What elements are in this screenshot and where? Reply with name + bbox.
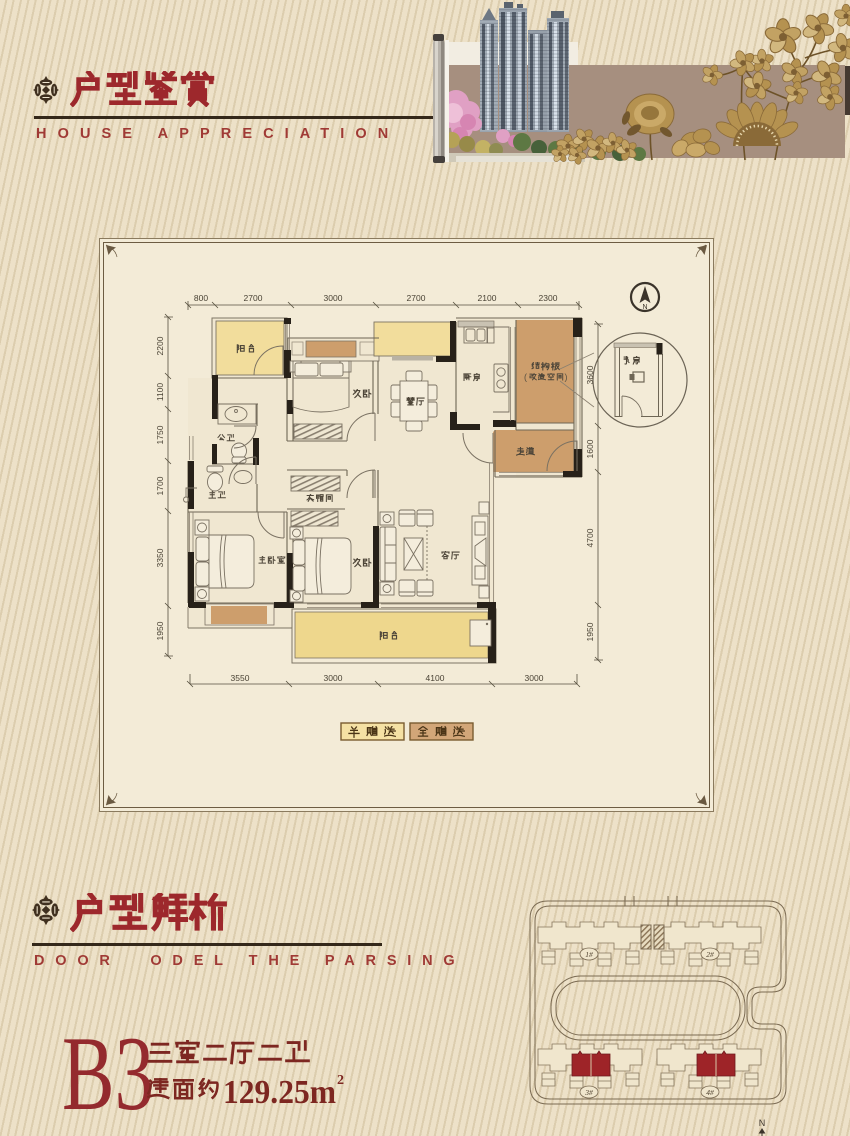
svg-text:2100: 2100 [478,293,497,303]
svg-text:1600: 1600 [585,439,595,458]
svg-text:3550: 3550 [231,673,250,683]
svg-text:3000: 3000 [525,673,544,683]
svg-text:3000: 3000 [324,293,343,303]
svg-text:3#: 3# [584,1088,593,1097]
svg-text:129.25m: 129.25m [223,1074,336,1110]
svg-text:(: ( [524,372,527,382]
svg-text:1700: 1700 [155,476,165,495]
svg-text:2300: 2300 [539,293,558,303]
svg-text:1750: 1750 [155,425,165,444]
svg-text:2700: 2700 [407,293,426,303]
svg-text:3000: 3000 [324,673,343,683]
svg-text:2700: 2700 [244,293,263,303]
svg-text:N: N [759,1118,766,1128]
svg-text:1950: 1950 [585,622,595,641]
svg-text:1100: 1100 [155,383,165,402]
svg-text:3600: 3600 [585,365,595,384]
svg-text:N: N [642,304,647,311]
svg-text:4100: 4100 [426,673,445,683]
svg-text:3350: 3350 [155,548,165,567]
svg-text:1#: 1# [585,950,593,959]
svg-text:2200: 2200 [155,336,165,355]
svg-text:2: 2 [337,1073,344,1088]
svg-text:2#: 2# [706,950,714,959]
svg-text:B3: B3 [62,1030,154,1130]
svg-text:800: 800 [194,293,208,303]
svg-text:4700: 4700 [585,528,595,547]
svg-text:1950: 1950 [155,621,165,640]
svg-text:4#: 4# [706,1088,714,1097]
svg-text:): ) [565,372,568,382]
